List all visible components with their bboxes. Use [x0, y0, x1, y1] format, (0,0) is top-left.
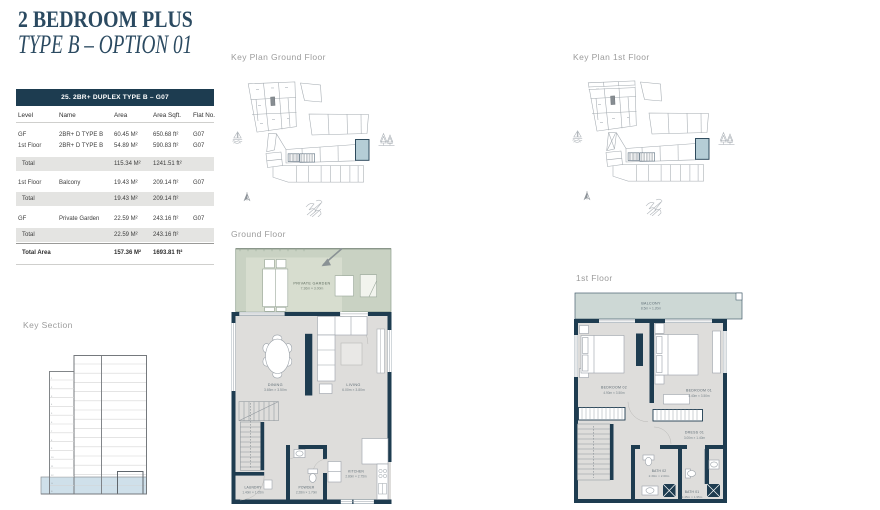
svg-text:1.40m × 1.05m: 1.40m × 1.05m — [242, 490, 264, 494]
svg-text:PRIVATE GARDEN: PRIVATE GARDEN — [293, 282, 330, 286]
svg-text:POWDER: POWDER — [298, 486, 314, 490]
svg-text:BALCONY: BALCONY — [641, 302, 661, 306]
svg-text:7.36m × 3.00m: 7.36m × 3.00m — [301, 287, 324, 291]
svg-text:6.00m × 3.80m: 6.00m × 3.80m — [342, 388, 365, 392]
svg-text:BEDROOM 02: BEDROOM 02 — [601, 386, 627, 390]
svg-text:KITCHEN: KITCHEN — [348, 470, 364, 474]
svg-text:LAUNDRY: LAUNDRY — [244, 486, 262, 490]
svg-text:2.28m × 1.70m: 2.28m × 1.70m — [296, 490, 318, 494]
svg-text:BATH 01: BATH 01 — [685, 490, 700, 494]
svg-text:2.30m × 2.00m: 2.30m × 2.00m — [649, 474, 670, 478]
svg-text:BEDROOM 01: BEDROOM 01 — [686, 389, 712, 393]
svg-text:DINING: DINING — [268, 383, 283, 387]
svg-text:2.45m × 1.95m: 2.45m × 1.95m — [682, 495, 703, 499]
svg-text:4.40m × 3.50m: 4.40m × 3.50m — [688, 394, 710, 398]
svg-text:4.90m × 3.50m: 4.90m × 3.50m — [603, 391, 625, 395]
svg-text:LIVING: LIVING — [346, 383, 360, 387]
svg-text:2.80m × 2.75m: 2.80m × 2.75m — [345, 474, 367, 478]
svg-text:3.00m × 1.40m: 3.00m × 1.40m — [684, 436, 706, 440]
svg-text:DRESS 01: DRESS 01 — [685, 431, 704, 435]
svg-text:G: G — [51, 483, 53, 485]
svg-text:8.5m × 1.20m: 8.5m × 1.20m — [641, 307, 662, 311]
svg-text:BATH 02: BATH 02 — [652, 469, 667, 473]
svg-text:3.65m × 3.50m: 3.65m × 3.50m — [264, 388, 287, 392]
